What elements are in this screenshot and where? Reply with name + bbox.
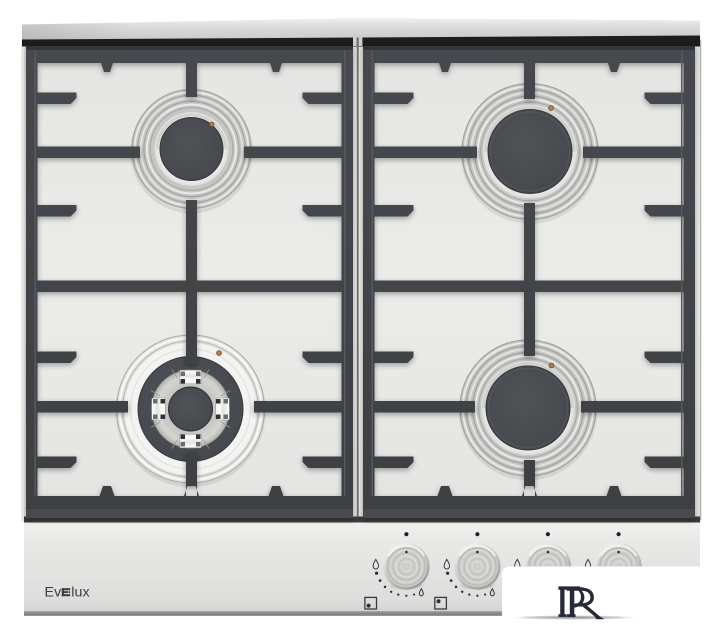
svg-text:Ev: Ev xyxy=(45,585,63,601)
svg-text:lux: lux xyxy=(71,585,89,601)
